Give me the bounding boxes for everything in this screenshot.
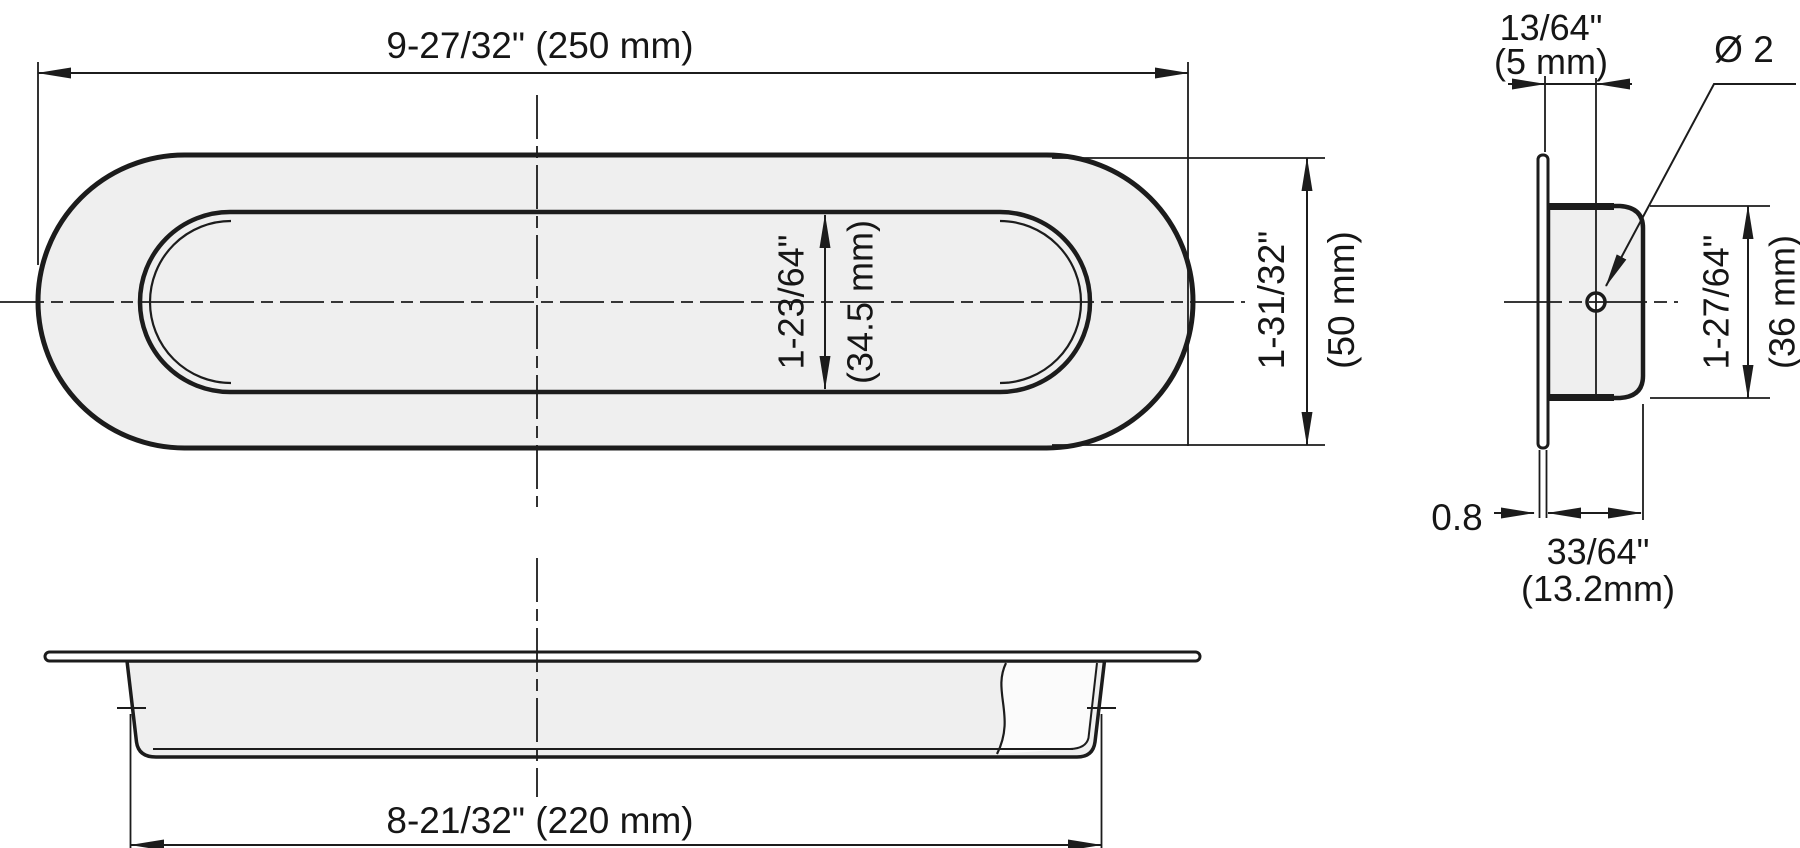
bowl-outline (127, 661, 1105, 757)
hole-diameter-label: Ø 2 (1714, 29, 1774, 70)
flange-thickness-label: 0.8 (1431, 497, 1482, 538)
dim-body-height: 1-27/64" (36 mm) (1650, 206, 1800, 398)
recess-dim-inch-label: 1-23/64" (771, 235, 812, 370)
depth-inch-label: 33/64" (1547, 531, 1650, 572)
length-dim-label: 9-27/32" (250 mm) (386, 25, 693, 66)
height-dim-mm-label: (50 mm) (1321, 231, 1362, 369)
inner-length-dim-label: 8-21/32" (220 mm) (386, 800, 693, 841)
dim-hole-offset: 13/64" (5 mm) (1494, 7, 1632, 152)
side-view (1504, 78, 1678, 518)
body-height-inch-label: 1-27/64" (1696, 235, 1737, 370)
body-height-mm-label: (36 mm) (1762, 235, 1800, 369)
technical-drawing: 9-27/32" (250 mm) 1-31/32" (50 mm) 1-23/… (0, 0, 1800, 848)
section-view (45, 558, 1200, 797)
dim-recess-width: 1-23/64" (34.5 mm) (771, 215, 881, 389)
hole-offset-mm-label: (5 mm) (1494, 41, 1608, 82)
dim-flange-thickness: 0.8 (1431, 497, 1534, 538)
bowl-break-highlight (997, 663, 1096, 754)
height-dim-inch-label: 1-31/32" (1251, 231, 1292, 370)
flange-plate (45, 652, 1200, 661)
recess-dim-mm-label: (34.5 mm) (840, 220, 881, 384)
depth-mm-label: (13.2mm) (1521, 568, 1675, 609)
